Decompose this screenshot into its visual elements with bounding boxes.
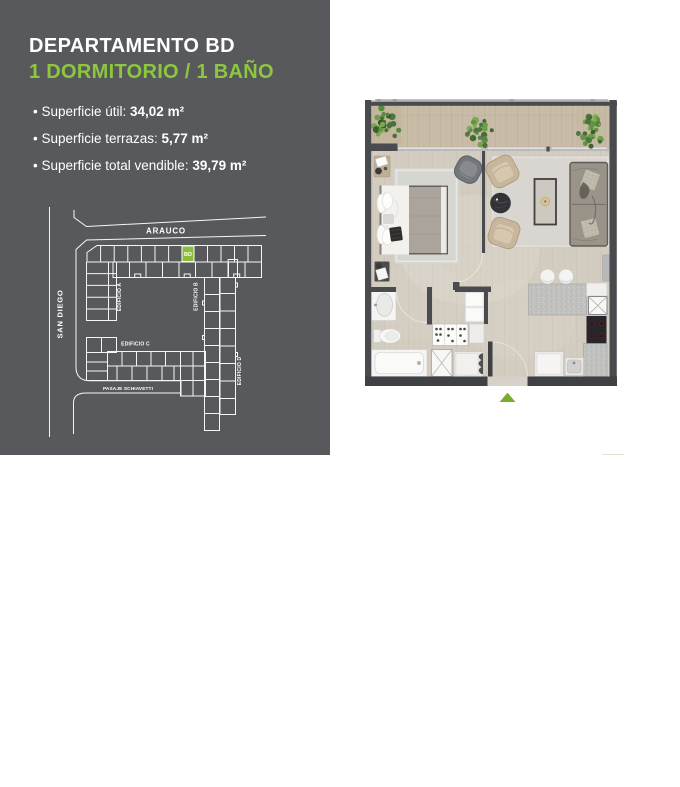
svg-text:PASAJE SCHIAVETTI: PASAJE SCHIAVETTI [103,386,154,392]
svg-text:EDIFICIO C: EDIFICIO C [121,342,150,348]
svg-text:EDIFICIO B: EDIFICIO B [194,282,200,311]
svg-text:EDIFICIO A: EDIFICIO A [117,283,123,312]
svg-text:ARAUCO: ARAUCO [146,227,186,236]
svg-text:EDIFICIO D: EDIFICIO D [237,356,243,385]
svg-text:SAN DIEGO: SAN DIEGO [56,290,65,339]
svg-text:BD: BD [184,252,192,258]
